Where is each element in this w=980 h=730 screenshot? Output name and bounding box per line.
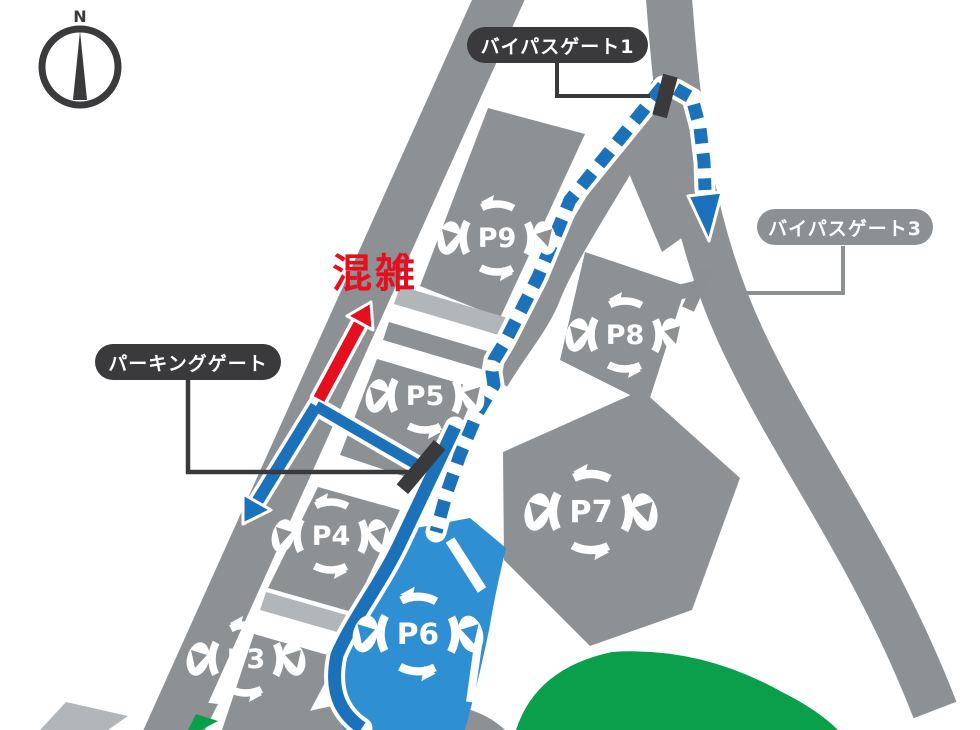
compass-n-label: N (73, 7, 86, 26)
green-area-large (516, 651, 838, 730)
lot-icon-text-p5: P5 (406, 381, 445, 412)
lot-icon-text-p7: P7 (569, 495, 612, 530)
parking-map: N P9P8P5P7P4P6P3 バイパスゲート1 バイパスゲート3 パーキング… (0, 0, 980, 730)
lot-icon-text-p8: P8 (606, 320, 645, 351)
bypass-gate-1-label: バイパスゲート1 (467, 27, 648, 63)
lot-icon-text-p3: P3 (227, 644, 266, 675)
bypass-gate-3-label: バイパスゲート3 (757, 209, 933, 245)
highway (668, 0, 935, 710)
congestion-label: 混雑 (332, 254, 418, 294)
bottom-left-light-strip (40, 702, 128, 730)
lot-icon-text-p4: P4 (312, 521, 351, 552)
compass: N (42, 7, 118, 105)
parking-gate-label: パーキングゲート (95, 344, 281, 380)
lot-icon-text-p9: P9 (478, 223, 517, 254)
lot-icon-text-p6: P6 (397, 617, 439, 652)
bypass-gate-1-connector (557, 63, 650, 96)
